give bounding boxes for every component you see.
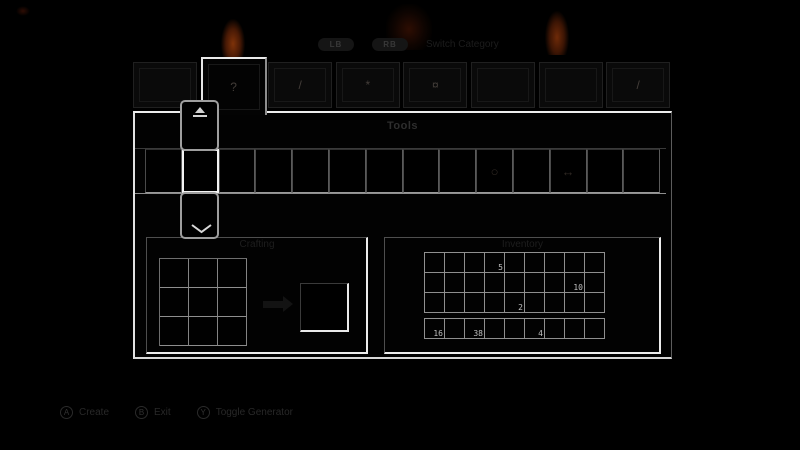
inventory-grid: 5102 <box>424 252 605 313</box>
inventory-cell[interactable] <box>485 273 505 293</box>
item-slot-12[interactable] <box>587 149 624 193</box>
tab-inner: / <box>612 68 664 102</box>
inventory-cell[interactable] <box>445 293 465 313</box>
hint-label: Toggle Generator <box>216 407 293 418</box>
item-count: 16 <box>433 329 443 338</box>
tab-3[interactable]: * <box>336 62 400 108</box>
tab-inner: / <box>274 68 326 102</box>
button-y-icon: Y <box>197 406 210 419</box>
left-bumper-icon: LB <box>318 38 354 51</box>
item-icon: ¤ <box>432 78 439 92</box>
crafting-cell[interactable] <box>218 317 247 346</box>
inventory-cell[interactable] <box>525 273 545 293</box>
up-arrow-bar <box>193 115 207 117</box>
inventory-cell[interactable] <box>585 253 605 273</box>
hatchet-icon: / <box>637 78 640 92</box>
item-slot-5[interactable] <box>329 149 366 193</box>
item-slot-0[interactable] <box>145 149 182 193</box>
item-count: 2 <box>518 303 523 312</box>
tab-2[interactable]: / <box>268 62 332 108</box>
item-slot-10[interactable] <box>513 149 550 193</box>
item-count: 10 <box>573 283 583 292</box>
inventory-cell[interactable] <box>425 273 445 293</box>
item-row: ○↔ <box>145 149 660 193</box>
inventory-cell[interactable] <box>465 273 485 293</box>
inventory-cell[interactable] <box>425 293 445 313</box>
hotbar-grid: 16384 <box>424 318 605 339</box>
inventory-cell[interactable]: 2 <box>505 293 525 313</box>
switch-category-hint: Switch Category <box>426 39 499 50</box>
bottom-hints: ACreateBExitYToggle Generator <box>60 406 293 419</box>
button-b-icon: B <box>135 406 148 419</box>
top-hint-bar: LB RB Switch Category <box>318 37 499 52</box>
item-slot-4[interactable] <box>292 149 329 193</box>
hint-label: Create <box>79 407 109 418</box>
inventory-cell[interactable] <box>485 293 505 313</box>
button-a-icon: A <box>60 406 73 419</box>
inventory-cell[interactable] <box>545 293 565 313</box>
tool-icon: ? <box>230 80 237 94</box>
up-arrow-icon <box>195 107 205 113</box>
item-slot-3[interactable] <box>255 149 292 193</box>
ore-icon: * <box>365 78 370 92</box>
crafting-cell[interactable] <box>218 288 247 317</box>
inventory-cell[interactable] <box>425 253 445 273</box>
inventory-cell[interactable] <box>545 273 565 293</box>
hotbar-cell[interactable] <box>485 319 505 339</box>
scroll-up-button[interactable] <box>180 100 219 151</box>
inventory-cell[interactable]: 10 <box>565 273 585 293</box>
inventory-cell[interactable] <box>525 253 545 273</box>
crafting-cell[interactable] <box>160 259 189 288</box>
crafting-cell[interactable] <box>218 259 247 288</box>
crafting-output-slot[interactable] <box>300 283 349 332</box>
hotbar-cell[interactable]: 38 <box>465 319 485 339</box>
hotbar-cell[interactable]: 16 <box>425 319 445 339</box>
hint-toggle-generator: YToggle Generator <box>197 406 293 419</box>
clock-icon: ○ <box>491 164 499 179</box>
item-count: 38 <box>473 329 483 338</box>
item-slot-6[interactable] <box>366 149 403 193</box>
item-slot-13[interactable] <box>623 149 660 193</box>
hotbar-cell[interactable] <box>585 319 605 339</box>
right-bumper-icon: RB <box>372 38 408 51</box>
tab-7[interactable]: / <box>606 62 670 108</box>
item-slot-9[interactable]: ○ <box>476 149 513 193</box>
tab-inner <box>545 68 597 102</box>
inventory-cell[interactable] <box>525 293 545 313</box>
inventory-cell[interactable] <box>505 273 525 293</box>
hotbar-cell[interactable] <box>445 319 465 339</box>
crafting-title: Crafting <box>146 239 368 250</box>
inventory-cell[interactable] <box>445 253 465 273</box>
inventory-cell[interactable] <box>445 273 465 293</box>
crafting-cell[interactable] <box>160 288 189 317</box>
ember-glow <box>16 6 30 16</box>
crafting-cell[interactable] <box>189 288 218 317</box>
crafting-grid <box>159 258 247 346</box>
inventory-cell[interactable] <box>585 273 605 293</box>
sword-icon: / <box>299 78 302 92</box>
item-slot-11[interactable]: ↔ <box>550 149 587 193</box>
item-slot-1[interactable] <box>182 149 219 193</box>
torch-flame-left-icon <box>221 19 245 59</box>
item-slot-7[interactable] <box>403 149 440 193</box>
torch-flame-right-icon <box>545 11 569 55</box>
inventory-cell[interactable]: 5 <box>485 253 505 273</box>
tab-6[interactable] <box>539 62 603 108</box>
tab-inner: * <box>342 68 394 102</box>
item-slot-2[interactable] <box>219 149 256 193</box>
inventory-cell[interactable] <box>545 253 565 273</box>
hint-label: Exit <box>154 407 171 418</box>
inventory-cell[interactable] <box>565 293 585 313</box>
craft-arrow-icon <box>263 296 293 312</box>
hint-create: ACreate <box>60 406 109 419</box>
hotbar-cell[interactable] <box>505 319 525 339</box>
item-count: 4 <box>538 329 543 338</box>
crafting-cell[interactable] <box>160 317 189 346</box>
tab-inner <box>139 68 191 102</box>
inventory-cell[interactable] <box>565 253 585 273</box>
inventory-cell[interactable] <box>585 293 605 313</box>
hotbar-cell[interactable]: 4 <box>525 319 545 339</box>
inventory-cell[interactable] <box>465 253 485 273</box>
tab-5[interactable] <box>471 62 535 108</box>
inventory-title: Inventory <box>384 239 661 250</box>
down-chevron-icon <box>190 224 213 234</box>
item-count: 5 <box>498 263 503 272</box>
inventory-cell[interactable] <box>465 293 485 313</box>
tab-inner: ¤ <box>409 68 461 102</box>
hint-exit: BExit <box>135 406 171 419</box>
hotbar-cell[interactable] <box>545 319 565 339</box>
inventory-cell[interactable] <box>505 253 525 273</box>
tab-inner <box>477 68 529 102</box>
crafting-cell[interactable] <box>189 259 218 288</box>
hotbar-cell[interactable] <box>565 319 585 339</box>
item-slot-8[interactable] <box>439 149 476 193</box>
tab-4[interactable]: ¤ <box>403 62 467 108</box>
crafting-cell[interactable] <box>189 317 218 346</box>
scroll-down-button[interactable] <box>180 192 219 239</box>
arrow-item-icon: ↔ <box>562 164 575 179</box>
